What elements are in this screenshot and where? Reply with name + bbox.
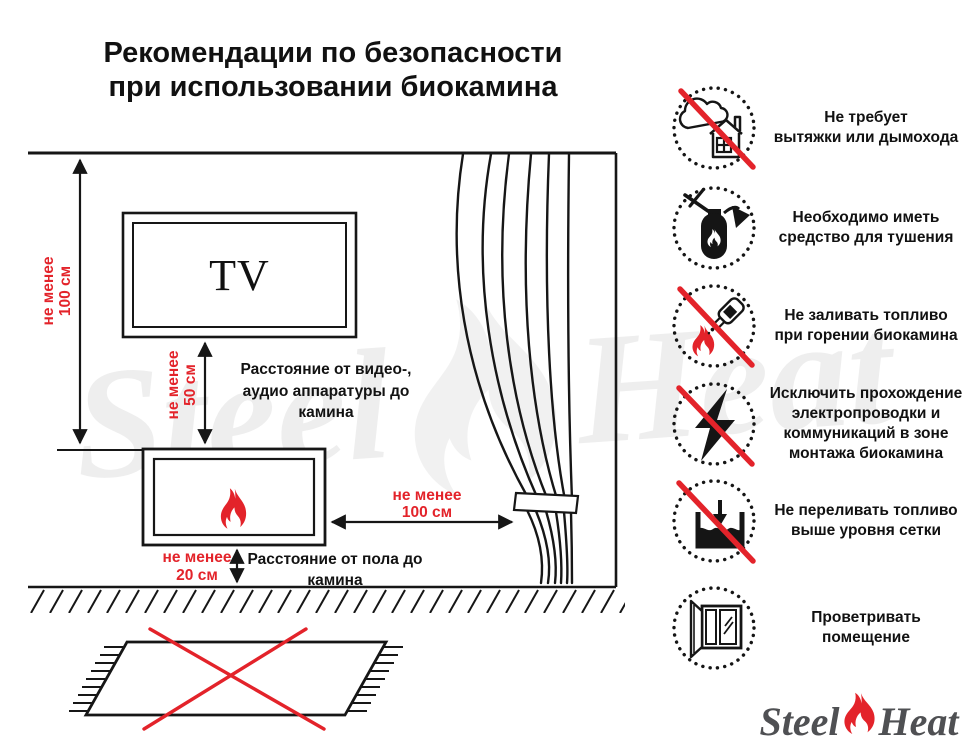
floor-hatching bbox=[28, 589, 625, 613]
ventilate-icon bbox=[668, 582, 760, 674]
title-line: Рекомендации по безопасности bbox=[33, 36, 633, 70]
safety-item-no-refuel: Не заливать топливо при горении биокамин… bbox=[668, 280, 968, 372]
tv-label: TV bbox=[123, 213, 356, 337]
title-line: при использовании биокамина bbox=[33, 70, 633, 104]
steelheat-logo: Steel Heat bbox=[750, 693, 968, 749]
safety-item-label: Не переливать топливо выше уровня сетки bbox=[760, 501, 968, 541]
logo-heat: Heat bbox=[879, 698, 959, 745]
safety-item-extinguisher: Необходимо иметь средство для тушения bbox=[668, 182, 968, 274]
safety-item-ventilate: Проветривать помещение bbox=[668, 582, 968, 674]
infographic-page: Steel Heat Рекомендации по безопасности … bbox=[0, 0, 970, 749]
no-overfill-icon bbox=[668, 475, 760, 567]
safety-item-label: Проветривать помещение bbox=[760, 608, 968, 648]
carpet-forbidden bbox=[69, 629, 403, 729]
safety-item-label: Не заливать топливо при горении биокамин… bbox=[760, 306, 968, 346]
safety-item-label: Исключить прохождение электропроводки и … bbox=[760, 384, 968, 464]
safety-item-no-wiring: Исключить прохождение электропроводки и … bbox=[668, 378, 968, 470]
biofireplace-box bbox=[143, 449, 325, 545]
tv-distance-label: не менее 50 см bbox=[165, 320, 199, 450]
extinguisher-icon bbox=[668, 182, 760, 274]
logo-steel: Steel bbox=[760, 698, 840, 745]
safety-item-label: Необходимо иметь средство для тушения bbox=[760, 208, 968, 248]
safety-item-label: Не требует вытяжки или дымохода bbox=[760, 108, 968, 148]
safety-item-no-chimney: Не требует вытяжки или дымохода bbox=[668, 82, 968, 174]
no-refuel-while-burning-icon bbox=[668, 280, 760, 372]
page-title: Рекомендации по безопасности при использ… bbox=[33, 36, 633, 104]
logo-flame-icon bbox=[841, 691, 878, 747]
no-chimney-icon bbox=[668, 82, 760, 174]
curtain-distance-label: не менее 100 см bbox=[377, 487, 477, 521]
safety-item-no-overfill: Не переливать топливо выше уровня сетки bbox=[668, 475, 968, 567]
floor-distance-label: не менее 20 см bbox=[147, 549, 247, 585]
tv-distance-note: Расстояние от видео-, аудио аппаратуры д… bbox=[216, 359, 436, 424]
floor-distance-note: Расстояние от пола до камина bbox=[235, 549, 435, 591]
curtain-tieback bbox=[514, 493, 578, 513]
ceiling-distance-label: не менее 100 см bbox=[40, 226, 74, 356]
no-wiring-icon bbox=[668, 378, 760, 470]
